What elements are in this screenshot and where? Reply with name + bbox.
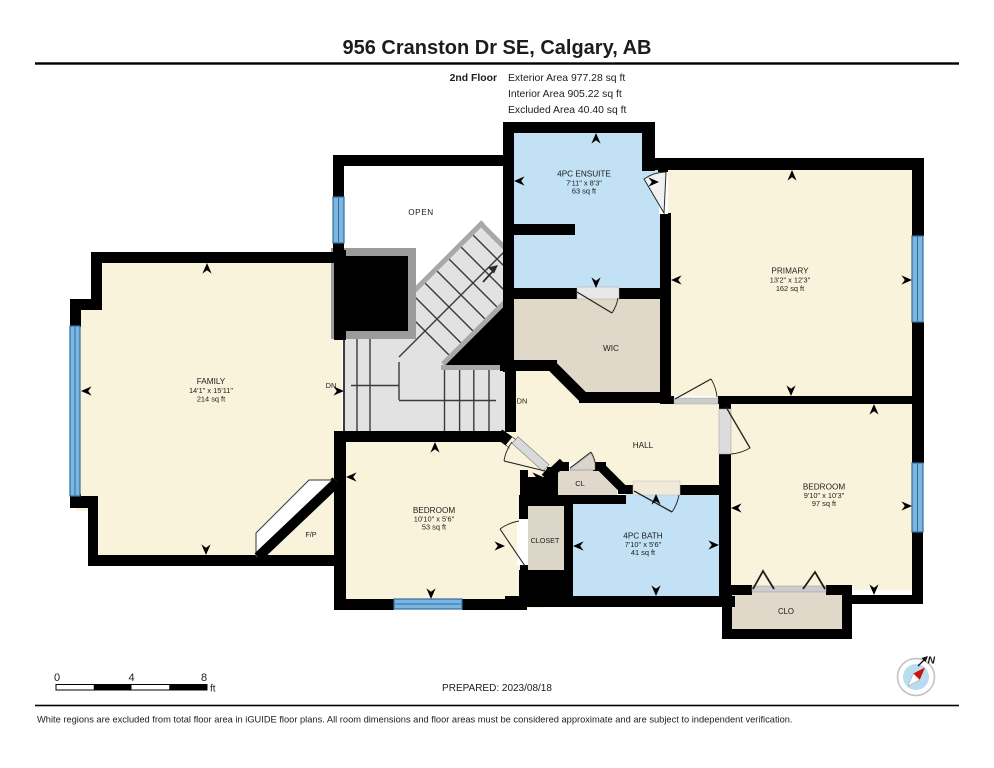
- svg-text:WIC: WIC: [603, 344, 619, 353]
- svg-text:2nd Floor: 2nd Floor: [450, 73, 497, 84]
- svg-text:F/P: F/P: [305, 530, 316, 539]
- svg-text:CLO: CLO: [778, 607, 794, 616]
- svg-text:0: 0: [54, 672, 60, 684]
- svg-text:Exterior Area 977.28 sq ft: Exterior Area 977.28 sq ft: [508, 73, 625, 84]
- svg-text:41 sq ft: 41 sq ft: [631, 548, 655, 557]
- svg-text:N: N: [928, 655, 936, 667]
- svg-text:HALL: HALL: [633, 441, 654, 450]
- svg-text:53 sq ft: 53 sq ft: [422, 523, 446, 532]
- svg-text:956 Cranston Dr SE, Calgary, A: 956 Cranston Dr SE, Calgary, AB: [343, 37, 652, 59]
- svg-text:DN: DN: [517, 397, 528, 406]
- svg-text:OPEN: OPEN: [408, 208, 434, 217]
- svg-text:4PC ENSUITE: 4PC ENSUITE: [557, 170, 611, 179]
- svg-text:63 sq ft: 63 sq ft: [572, 187, 596, 196]
- svg-text:CL: CL: [575, 479, 585, 488]
- svg-text:PRIMARY: PRIMARY: [771, 267, 809, 276]
- svg-text:White regions are excluded fro: White regions are excluded from total fl…: [37, 715, 793, 725]
- svg-text:214 sq ft: 214 sq ft: [197, 395, 225, 404]
- svg-text:4: 4: [128, 672, 134, 684]
- svg-text:PREPARED: 2023/08/18: PREPARED: 2023/08/18: [442, 683, 552, 694]
- svg-text:DN: DN: [326, 381, 337, 390]
- svg-text:97 sq ft: 97 sq ft: [812, 499, 836, 508]
- svg-text:FAMILY: FAMILY: [197, 377, 226, 386]
- svg-text:Excluded Area 40.40 sq ft: Excluded Area 40.40 sq ft: [508, 105, 627, 116]
- svg-text:ft: ft: [210, 684, 216, 695]
- svg-text:8: 8: [201, 672, 207, 684]
- svg-text:Interior Area 905.22 sq ft: Interior Area 905.22 sq ft: [508, 89, 622, 100]
- svg-text:CLOSET: CLOSET: [531, 536, 560, 545]
- svg-text:162 sq ft: 162 sq ft: [776, 284, 804, 293]
